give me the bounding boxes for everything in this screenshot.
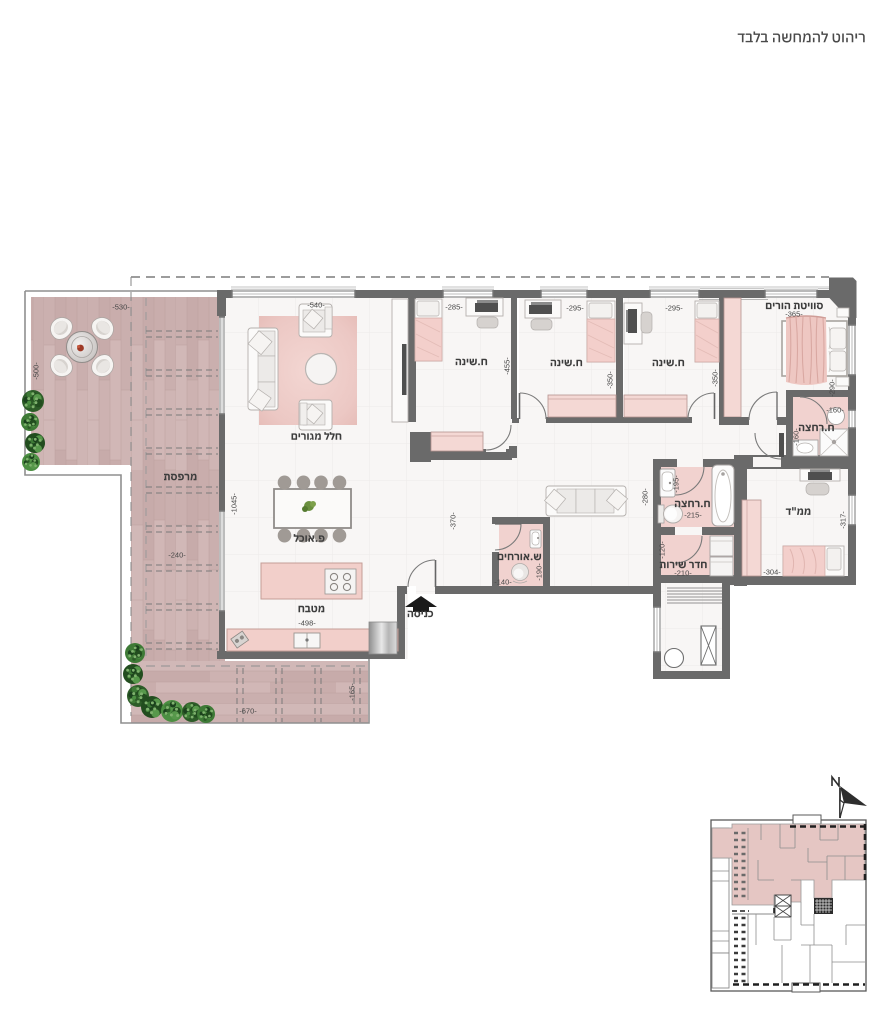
svg-text:-280-: -280- [641,488,650,506]
svg-text:-165-: -165- [348,683,357,701]
svg-text:-285-: -285- [445,303,463,312]
svg-text:-540-: -540- [307,301,325,310]
svg-text:-295-: -295- [665,304,683,313]
svg-text:-317-: -317- [839,511,848,529]
svg-text:-295-: -295- [566,304,584,313]
svg-text:-670-: -670- [239,707,257,716]
svg-text:-160-: -160- [792,428,801,446]
svg-text:-240-: -240- [168,551,186,560]
svg-text:-190-: -190- [535,563,544,581]
svg-text:-1045-: -1045- [230,493,239,515]
svg-text:-210-: -210- [674,569,692,578]
svg-text:-500-: -500- [32,362,41,380]
svg-text:-215-: -215- [684,511,702,520]
svg-text:-195-: -195- [672,475,681,493]
svg-text:-304-: -304- [763,568,781,577]
svg-text:-455-: -455- [503,357,512,375]
svg-text:-160-: -160- [826,406,844,415]
svg-text:-290-: -290- [828,379,837,397]
svg-text:-350-: -350- [711,369,720,387]
svg-text:-370-: -370- [449,512,458,530]
svg-text:-350-: -350- [606,371,615,389]
svg-text:-530-: -530- [112,303,130,312]
svg-text:-120-: -120- [658,541,667,559]
svg-text:-140-: -140- [494,578,512,587]
svg-text:-498-: -498- [298,619,316,628]
svg-text:-365-: -365- [785,310,803,319]
